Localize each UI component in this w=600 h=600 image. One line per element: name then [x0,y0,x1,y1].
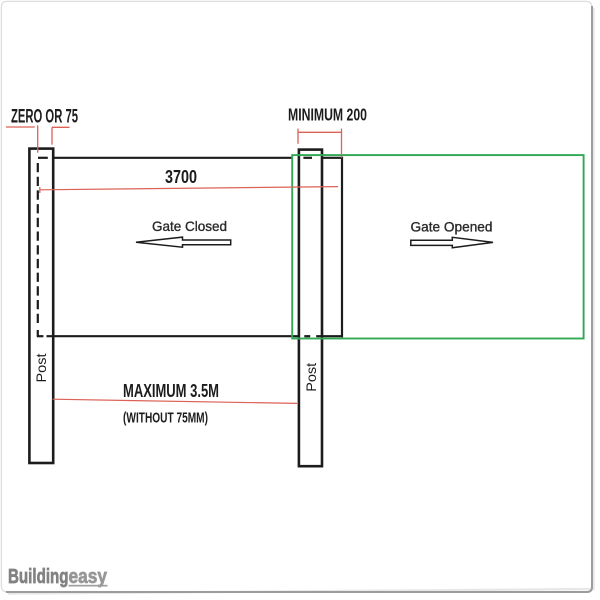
svg-text:Gate Closed: Gate Closed [152,218,227,234]
svg-text:MAXIMUM 3.5M: MAXIMUM 3.5M [123,380,219,401]
svg-text:ZERO OR 75: ZERO OR 75 [11,105,78,127]
svg-text:Post: Post [33,353,49,382]
svg-text:Post: Post [303,363,319,392]
svg-text:Building: Building [8,566,69,588]
svg-text:3700: 3700 [165,166,197,187]
svg-text:(WITHOUT 75MM): (WITHOUT 75MM) [123,410,208,427]
svg-text:MINIMUM 200: MINIMUM 200 [288,105,367,125]
svg-text:Gate Opened: Gate Opened [411,219,493,235]
